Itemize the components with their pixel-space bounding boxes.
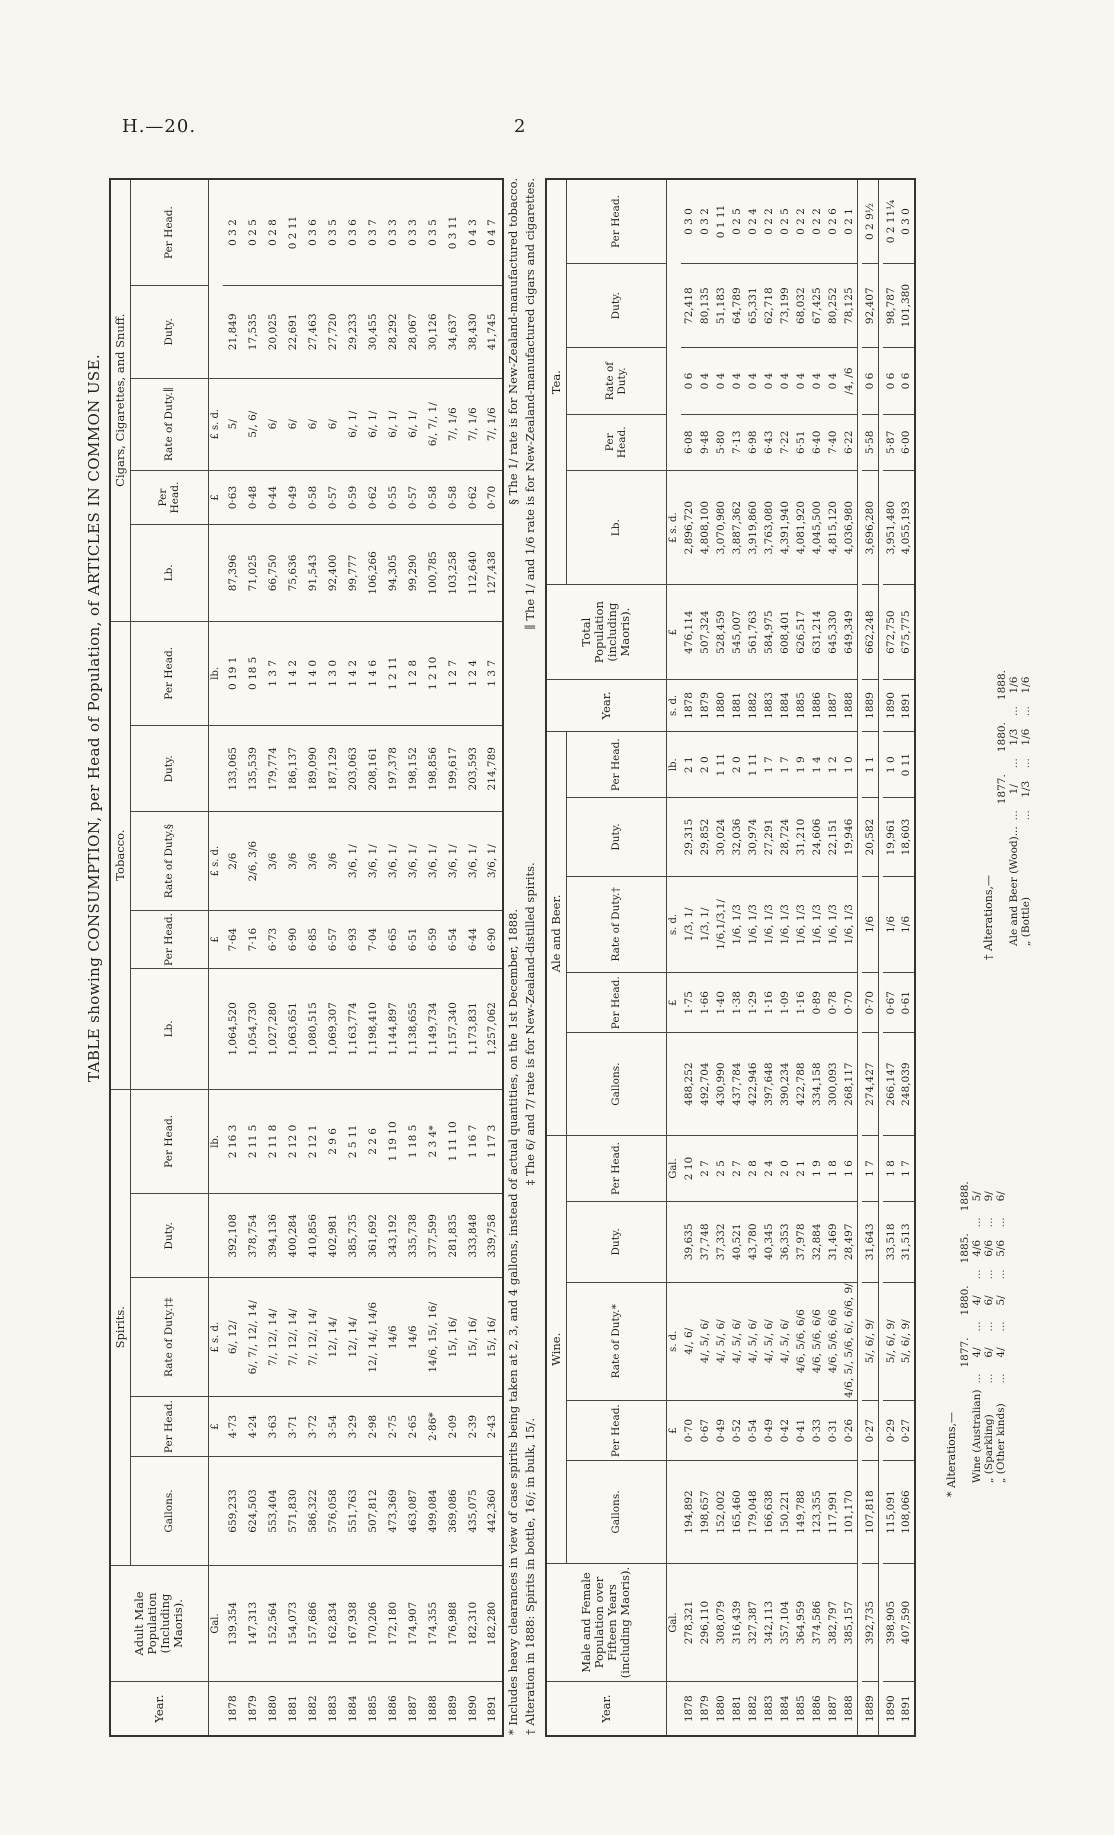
table-row: 1891407,590108,0660·275/, 6/, 9/31,5131 … [899, 179, 915, 1736]
data-cell: 149,788 [793, 1461, 809, 1563]
data-cell: 397,648 [761, 1033, 777, 1135]
data-cell: 1878 [681, 679, 697, 731]
data-cell: 631,214 [809, 585, 825, 679]
data-cell: 0 4 [793, 348, 809, 414]
table-row: 1883162,834576,0583·5412/, 14/402,9812 9… [323, 179, 343, 1736]
unit-label: £ s. d. [208, 378, 223, 470]
data-cell: 1,144,897 [383, 969, 403, 1090]
data-cell: 6·08 [681, 414, 697, 470]
data-cell: 78,125 [841, 264, 857, 348]
data-cell: 0·70 [681, 1401, 697, 1461]
data-cell: 1·09 [777, 973, 793, 1033]
data-cell: 28,067 [403, 286, 423, 378]
data-cell: 0 11 [899, 732, 915, 798]
data-cell: 179,048 [745, 1461, 761, 1563]
data-cell: 203,593 [463, 726, 483, 812]
unit-label: £ s. d. [208, 1278, 223, 1397]
data-cell: 400,284 [283, 1194, 303, 1278]
data-cell: 1 11 [745, 732, 761, 798]
data-cell: 1·40 [713, 973, 729, 1033]
data-cell: 0·70 [862, 973, 878, 1033]
data-cell: 1890 [883, 679, 899, 731]
data-cell: 22,151 [825, 798, 841, 876]
year-cell: 1891 [899, 1682, 915, 1736]
data-cell: 172,180 [383, 1565, 403, 1682]
data-cell: 41,745 [483, 286, 503, 378]
data-cell: 4/6, 5/6, 6/6 [793, 1282, 809, 1401]
data-cell: 335,738 [403, 1194, 423, 1278]
data-cell: 80,252 [825, 264, 841, 348]
data-cell: 2 12 1 [303, 1089, 323, 1193]
data-cell: 98,787 [883, 264, 899, 348]
data-cell: 1 11 10 [443, 1089, 463, 1193]
data-cell: 385,157 [841, 1563, 857, 1682]
data-cell: 410,856 [303, 1194, 323, 1278]
data-cell: 0·54 [745, 1401, 761, 1461]
alteration-value: 1/6 [1008, 664, 1020, 700]
data-cell: 72,418 [681, 264, 697, 348]
data-cell: 1,080,515 [303, 969, 323, 1090]
data-cell: 659,233 [223, 1457, 243, 1565]
data-cell: 6·98 [745, 414, 761, 470]
data-cell: 0·27 [862, 1401, 878, 1461]
spacer [959, 1384, 971, 1497]
leader-dots: ... [1020, 804, 1032, 820]
alteration-value: 1/3 [1020, 768, 1032, 804]
unit-label: £ [208, 1397, 223, 1457]
table-row: 1882157,686586,3223·727/, 12/, 14/410,85… [303, 179, 323, 1736]
data-cell: 1,257,062 [483, 969, 503, 1090]
data-cell: 0 3 3 [383, 179, 403, 286]
data-cell: 422,946 [745, 1033, 761, 1135]
table-row: 1881316,439165,4600·524/, 5/, 6/40,5212 … [729, 179, 745, 1736]
leader-dots: ... [995, 1368, 1007, 1384]
data-cell: 4·73 [223, 1397, 243, 1457]
data-cell: 1881 [729, 679, 745, 731]
data-cell: 1 16 7 [463, 1089, 483, 1193]
data-cell: 0 4 [697, 348, 713, 414]
data-cell: 0 2 11¼ [883, 179, 899, 264]
data-cell: 9·48 [697, 414, 713, 470]
year-cell: 1888 [841, 1682, 857, 1736]
column-header: Adult Male Population (Including Maoris)… [110, 1565, 208, 1682]
data-cell: 176,988 [443, 1565, 463, 1682]
unit-label [208, 525, 223, 621]
data-cell: 266,147 [883, 1033, 899, 1135]
data-cell: 2 0 [697, 732, 713, 798]
data-cell: 0 2 2 [761, 179, 777, 264]
data-cell: 0·58 [303, 470, 323, 524]
data-cell: 1 9 [809, 1135, 825, 1201]
alteration-value: 1/6 [1020, 716, 1032, 752]
data-cell: 626,517 [793, 585, 809, 679]
alteration-label: „ (Other kinds) [995, 1384, 1007, 1497]
data-cell: 4/, 5/, 6/ [761, 1282, 777, 1401]
data-cell: 0·78 [825, 973, 841, 1033]
data-cell: 166,638 [761, 1461, 777, 1563]
data-cell: 5/, 6/, 9/ [862, 1282, 878, 1401]
leader-dots: ... [995, 1211, 1007, 1227]
data-cell: 7·13 [729, 414, 745, 470]
leader-dots: ... [983, 1315, 995, 1331]
alteration-year: 1880. [959, 1279, 971, 1315]
year-cell: 1882 [745, 1682, 761, 1736]
data-cell: 99,290 [403, 525, 423, 621]
column-header: Rate of Duty.∥ [130, 378, 208, 470]
data-cell: 3,951,480 [883, 470, 899, 585]
year-cell: 1890 [463, 1682, 483, 1736]
data-cell: 17,535 [243, 286, 263, 378]
unit-label [208, 1194, 223, 1278]
data-cell: 0·42 [777, 1401, 793, 1461]
data-cell: 14/6 [383, 1278, 403, 1397]
data-cell: 0·44 [263, 470, 283, 524]
data-cell: 278,321 [681, 1563, 697, 1682]
data-cell: 37,978 [793, 1202, 809, 1282]
data-cell: 0 2 4 [745, 179, 761, 264]
data-cell: 6/, 12/ [223, 1278, 243, 1397]
data-cell: 0 2 2 [793, 179, 809, 264]
unit-label: £ [208, 910, 223, 968]
year-cell: 1890 [883, 1682, 899, 1736]
data-cell: 0 2 5 [777, 179, 793, 264]
leader-dots: ... [971, 1368, 983, 1384]
table-row: 1888385,157101,1700·264/6, 5/, 5/6, 6/, … [841, 179, 857, 1736]
data-cell: 31,210 [793, 798, 809, 876]
data-cell: 3,070,980 [713, 470, 729, 585]
unit-label: s. d. [666, 1282, 681, 1401]
alteration-label: „ (Bottle) [1020, 820, 1032, 960]
data-cell: 3/6, 1/ [463, 812, 483, 910]
data-cell: 0 2 1 [841, 179, 857, 264]
data-cell: 39,635 [681, 1202, 697, 1282]
data-cell: 3/6 [263, 812, 283, 910]
group-header: Spirits. [110, 1089, 130, 1565]
data-cell: 28,497 [841, 1202, 857, 1282]
data-cell: 12/, 14/ [323, 1278, 343, 1397]
data-cell: 3·72 [303, 1397, 323, 1457]
data-cell: 0 6 [681, 348, 697, 414]
data-cell: 2·98 [363, 1397, 383, 1457]
data-cell: 67,425 [809, 264, 825, 348]
data-cell: 7·40 [825, 414, 841, 470]
data-cell: 2 4 [761, 1135, 777, 1201]
data-cell: /4, /6 [841, 348, 857, 414]
data-cell: 0·67 [883, 973, 899, 1033]
data-cell: 0·57 [323, 470, 343, 524]
data-cell: 2,896,720 [681, 470, 697, 585]
data-cell: 1 17 3 [483, 1089, 503, 1193]
data-cell: 170,206 [363, 1565, 383, 1682]
data-cell: 4/, 5/, 6/ [713, 1282, 729, 1401]
footnote-line-1: * Includes heavy clearances in view of c… [506, 178, 520, 1735]
data-cell: 662,248 [862, 585, 878, 679]
data-cell: 40,345 [761, 1202, 777, 1282]
alteration-value: 4/ [971, 1279, 983, 1315]
year-cell: 1880 [713, 1682, 729, 1736]
data-cell: 182,280 [483, 1565, 503, 1682]
data-cell: 186,137 [283, 726, 303, 812]
alteration-value: 1/ [1008, 768, 1020, 804]
data-cell: 7/, 1/6 [463, 378, 483, 470]
data-cell: 6·00 [899, 414, 915, 470]
data-cell: 2 11 8 [263, 1089, 283, 1193]
data-cell: 488,252 [681, 1033, 697, 1135]
year-cell: 1889 [443, 1682, 463, 1736]
data-cell: 4·24 [243, 1397, 263, 1457]
leader-dots: ... [1020, 752, 1032, 768]
data-cell: 0 2 11 [283, 179, 303, 286]
table-row: 1890182,310435,0752·3915/, 16/333,8481 1… [463, 179, 483, 1736]
data-cell: 476,114 [681, 585, 697, 679]
data-cell: 327,387 [745, 1563, 761, 1682]
data-cell: 30,126 [423, 286, 443, 378]
data-cell: 1 7 [761, 732, 777, 798]
data-cell: 107,818 [862, 1461, 878, 1563]
data-cell: 2 9 6 [323, 1089, 343, 1193]
data-cell: 1889 [862, 679, 878, 731]
data-cell: 22,691 [283, 286, 303, 378]
alteration-label: Wine (Australian) [971, 1384, 983, 1497]
data-cell: 92,400 [323, 525, 343, 621]
data-cell: 1,054,730 [243, 969, 263, 1090]
unit-label [666, 1033, 681, 1135]
footnote-dagger: † Alteration in 1888: Spirits in bottle,… [523, 1418, 537, 1735]
column-header: Gallons. [566, 1033, 666, 1135]
data-cell: 3·54 [323, 1397, 343, 1457]
data-cell: 94,305 [383, 525, 403, 621]
data-cell: 7·16 [243, 910, 263, 968]
column-header: Year. [546, 679, 666, 731]
data-cell: 268,117 [841, 1033, 857, 1135]
data-cell: 1/6, 1/3 [777, 876, 793, 972]
unit-label: £ s. d. [208, 812, 223, 910]
footnote-double-dagger: ‡ The 6/ and 7/ rate is for New-Zealand-… [523, 862, 537, 1185]
data-cell: 3/6 [303, 812, 323, 910]
data-cell: 5/, 6/, 9/ [883, 1282, 899, 1401]
data-cell: 6·54 [443, 910, 463, 968]
footnote-parallel: ∥ The 1/ and 1/6 rate is for New-Zealand… [523, 178, 537, 630]
data-cell: 430,990 [713, 1033, 729, 1135]
data-cell: 101,170 [841, 1461, 857, 1563]
data-cell: 28,292 [383, 286, 403, 378]
data-cell: 135,539 [243, 726, 263, 812]
data-cell: 1·75 [681, 973, 697, 1033]
data-cell: 198,152 [403, 726, 423, 812]
data-cell: 2 8 [745, 1135, 761, 1201]
data-cell: 2 1 [681, 732, 697, 798]
data-cell: 3·29 [343, 1397, 363, 1457]
data-cell: 492,704 [697, 1033, 713, 1135]
table-row: 1880152,564553,4043·637/, 12/, 14/394,13… [263, 179, 283, 1736]
data-cell: 4,808,100 [697, 470, 713, 585]
spacer [996, 752, 1008, 768]
unit-label: s. d. [666, 679, 681, 731]
data-cell: 1/6, 1/3 [793, 876, 809, 972]
data-cell: 208,161 [363, 726, 383, 812]
data-cell: 7/, 1/6 [443, 378, 463, 470]
data-cell: 0 19 1 [223, 621, 243, 725]
data-cell: 3,763,080 [761, 470, 777, 585]
column-header: Lb. [566, 470, 666, 585]
data-cell: 7·64 [223, 910, 243, 968]
data-cell: 87,396 [223, 525, 243, 621]
alteration-value: 4/ [995, 1331, 1007, 1367]
table-row: 1889392,735107,8180·275/, 6/, 9/31,6431 … [862, 179, 878, 1736]
alteration-year: 1877. [996, 768, 1008, 804]
year-cell: 1886 [383, 1682, 403, 1736]
alteration-label: „ (Sparkling) [983, 1384, 995, 1497]
data-cell: 29,233 [343, 286, 363, 378]
data-cell: 1,163,774 [343, 969, 363, 1090]
data-cell: 584,975 [761, 585, 777, 679]
column-header: Duty. [130, 726, 208, 812]
data-cell: 1 2 10 [423, 621, 443, 725]
data-cell: 147,313 [243, 1565, 263, 1682]
data-cell: 1,063,651 [283, 969, 303, 1090]
data-cell: 1/6, 1/3 [761, 876, 777, 972]
leader-dots: ... [1008, 700, 1020, 716]
data-cell: 1·38 [729, 973, 745, 1033]
data-cell: 91,543 [303, 525, 323, 621]
data-cell: 1882 [745, 679, 761, 731]
data-cell: 2 7 [697, 1135, 713, 1201]
table-row: 1886374,586123,3550·334/6, 5/6, 6/632,88… [809, 179, 825, 1736]
consumption-table-wine-beer-tea: Year.Male and Female Population over Fif… [545, 178, 916, 1737]
unit-label [666, 1202, 681, 1282]
column-header: Per Head. [566, 1401, 666, 1461]
data-cell: 6·65 [383, 910, 403, 968]
data-cell: 12/, 14/, 14/6 [363, 1278, 383, 1397]
data-cell: 71,025 [243, 525, 263, 621]
data-cell: 3/6, 1/ [363, 812, 383, 910]
group-header: Tea. [546, 179, 566, 585]
data-cell: 3,887,362 [729, 470, 745, 585]
data-cell: 33,518 [883, 1202, 899, 1282]
data-cell: 2·39 [463, 1397, 483, 1457]
data-cell: 339,758 [483, 1194, 503, 1278]
data-cell: 7/, 12/, 14/ [303, 1278, 323, 1397]
data-cell: 0 4 [761, 348, 777, 414]
data-cell: 2·09 [443, 1397, 463, 1457]
data-cell: 2·65 [403, 1397, 423, 1457]
data-cell: 1 2 11 [383, 621, 403, 725]
data-cell: 62,718 [761, 264, 777, 348]
data-cell: 0 2 5 [243, 179, 263, 286]
table-row: 1885364,959149,7880·414/6, 5/6, 6/637,97… [793, 179, 809, 1736]
data-cell: 1 4 [809, 732, 825, 798]
data-cell: 407,590 [899, 1563, 915, 1682]
data-cell: 1/6, 1/3 [809, 876, 825, 972]
data-cell: 0·70 [483, 470, 503, 524]
table-row: 1879147,313624,5034·246/, 7/, 12/, 14/37… [243, 179, 263, 1736]
year-cell: 1881 [283, 1682, 303, 1736]
alteration-value: 1/3 [1008, 716, 1020, 752]
data-cell: 1 18 5 [403, 1089, 423, 1193]
data-cell: 174,355 [423, 1565, 443, 1682]
data-cell: 15/, 16/ [443, 1278, 463, 1397]
data-cell: 0 18 5 [243, 621, 263, 725]
data-cell: 154,073 [283, 1565, 303, 1682]
data-cell: 6·59 [423, 910, 443, 968]
data-cell: 334,158 [809, 1033, 825, 1135]
footnote-asterisk: * Includes heavy clearances in view of c… [506, 909, 520, 1735]
alteration-value: 6/ [995, 1175, 1007, 1211]
column-header: Total Population (including Maoris). [546, 585, 666, 679]
unit-label [208, 969, 223, 1090]
year-cell: 1883 [323, 1682, 343, 1736]
leader-dots: ... [995, 1315, 1007, 1331]
leader-dots: ... [971, 1211, 983, 1227]
data-cell: 4/, 5/, 6/ [745, 1282, 761, 1401]
alteration-year: 1888. [959, 1175, 971, 1211]
data-cell: 0 3 11 [443, 179, 463, 286]
data-cell: 1 2 4 [463, 621, 483, 725]
data-cell: 27,291 [761, 798, 777, 876]
data-cell: 6·93 [343, 910, 363, 968]
alterations-ale-beer-title: † Alterations,— [982, 664, 995, 960]
data-cell: 5/, 6/, 9/ [899, 1282, 915, 1401]
data-cell: 6/ [263, 378, 283, 470]
year-cell: 1887 [403, 1682, 423, 1736]
data-cell: 382,797 [825, 1563, 841, 1682]
unit-label [208, 1682, 223, 1736]
data-cell: 0·62 [463, 470, 483, 524]
data-cell: 4,081,920 [793, 470, 809, 585]
alterations-wine-note: * Alterations,— 1877.1880.1885.1888.Wine… [945, 1175, 1007, 1497]
data-cell: 6·73 [263, 910, 283, 968]
data-cell: 4,391,940 [777, 470, 793, 585]
year-cell: 1878 [223, 1682, 243, 1736]
year-cell: 1878 [681, 1682, 697, 1736]
group-header: Wine. [546, 1135, 566, 1563]
alteration-row: „ (Sparkling)...6/...6/...6/6...9/ [983, 1175, 995, 1497]
data-cell: 1 4 2 [343, 621, 363, 725]
data-cell: 31,469 [825, 1202, 841, 1282]
data-cell: 1/6 [883, 876, 899, 972]
data-cell: 106,266 [363, 525, 383, 621]
data-cell: 0 1 11 [713, 179, 729, 264]
alteration-label: Ale and Beer (Wood)... [1008, 820, 1020, 960]
data-cell: 6·90 [483, 910, 503, 968]
alteration-value: 9/ [983, 1175, 995, 1211]
data-cell: 3/6, 1/ [483, 812, 503, 910]
year-cell: 1885 [793, 1682, 809, 1736]
data-cell: 0 3 0 [899, 179, 915, 264]
alteration-value: 6/6 [983, 1227, 995, 1263]
data-cell: 117,991 [825, 1461, 841, 1563]
data-cell: 3/6, 1/ [443, 812, 463, 910]
data-cell: 12/, 14/ [343, 1278, 363, 1397]
data-cell: 5/, 6/ [243, 378, 263, 470]
data-cell: 1 3 7 [263, 621, 283, 725]
data-cell: 274,427 [862, 1033, 878, 1135]
data-cell: 0·29 [883, 1401, 899, 1461]
data-cell: 92,407 [862, 264, 878, 348]
data-cell: 0 3 7 [363, 179, 383, 286]
data-cell: 385,735 [343, 1194, 363, 1278]
unit-label: lb. [208, 1089, 223, 1193]
data-cell: 0·31 [825, 1401, 841, 1461]
data-cell: 4/, 5/, 6/ [777, 1282, 793, 1401]
unit-label: £ s. d. [666, 470, 681, 585]
data-cell: 165,460 [729, 1461, 745, 1563]
table-row: 1891182,280442,3602·4315/, 16/339,7581 1… [483, 179, 503, 1736]
data-cell: 0 3 6 [343, 179, 363, 286]
data-cell: 4,055,193 [899, 470, 915, 585]
data-cell: 32,884 [809, 1202, 825, 1282]
data-cell: 0 6 [862, 348, 878, 414]
